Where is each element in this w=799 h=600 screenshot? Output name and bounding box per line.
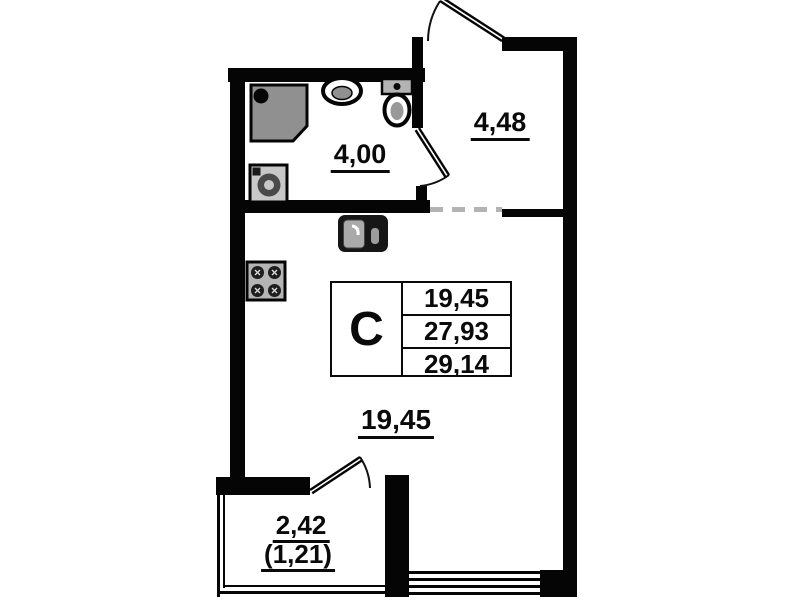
- window-line-4: [409, 592, 542, 595]
- wall-left: [230, 68, 245, 480]
- balcony-coefficient-area-label: (1,21): [261, 541, 335, 572]
- toilet-icon: [382, 79, 412, 126]
- zone-boundary-dashed: [430, 207, 502, 212]
- entrance-door-icon: [428, 0, 504, 41]
- washing-machine-icon: [250, 165, 287, 202]
- bathroom-area-label: 4,00: [331, 141, 390, 173]
- window-line-2: [409, 578, 542, 581]
- bathroom-door-icon: [416, 128, 449, 186]
- window-line-3: [409, 585, 542, 588]
- apartment-stamp: С 19,45 27,93 29,14: [330, 281, 512, 377]
- wall-bathroom-right-upper: [412, 82, 423, 128]
- floor-plan: 4,00 4,48 19,45 2,42 (1,21) С 19,45 27,9…: [0, 0, 799, 600]
- wall-hallway-bottom: [502, 209, 577, 217]
- apartment-stamp-values: 19,45 27,93 29,14: [403, 283, 510, 375]
- living-room-area-label: 19,45: [358, 406, 434, 439]
- balcony-wall-left-inner: [223, 493, 225, 588]
- wall-balcony-divider: [216, 477, 310, 495]
- kitchen-sink-icon: [338, 215, 388, 252]
- wall-right: [563, 37, 577, 597]
- wall-bathroom-bottom: [230, 200, 430, 213]
- shower-drain: [254, 89, 269, 104]
- balcony-area-label: 2,42: [273, 512, 330, 543]
- wall-bottom-right-corner: [540, 570, 577, 597]
- stamp-living-area-value: 19,45: [403, 283, 510, 316]
- apartment-type-label: С: [332, 283, 403, 375]
- shower-cabin-icon: [251, 85, 307, 141]
- stove-icon: [247, 262, 285, 300]
- balcony-wall-bottom-inner: [225, 585, 385, 587]
- hallway-area-label: 4,48: [471, 109, 530, 141]
- balcony-wall-bottom-outer: [217, 591, 385, 594]
- stamp-total-area-with-balcony-value: 29,14: [403, 349, 510, 380]
- balcony-door-icon: [310, 457, 370, 493]
- wall-bathroom-top: [228, 68, 425, 82]
- balcony-wall-left-outer: [217, 493, 220, 597]
- window-line-1: [409, 571, 542, 574]
- stamp-total-area-value: 27,93: [403, 316, 510, 349]
- wall-balcony-pier: [385, 475, 409, 597]
